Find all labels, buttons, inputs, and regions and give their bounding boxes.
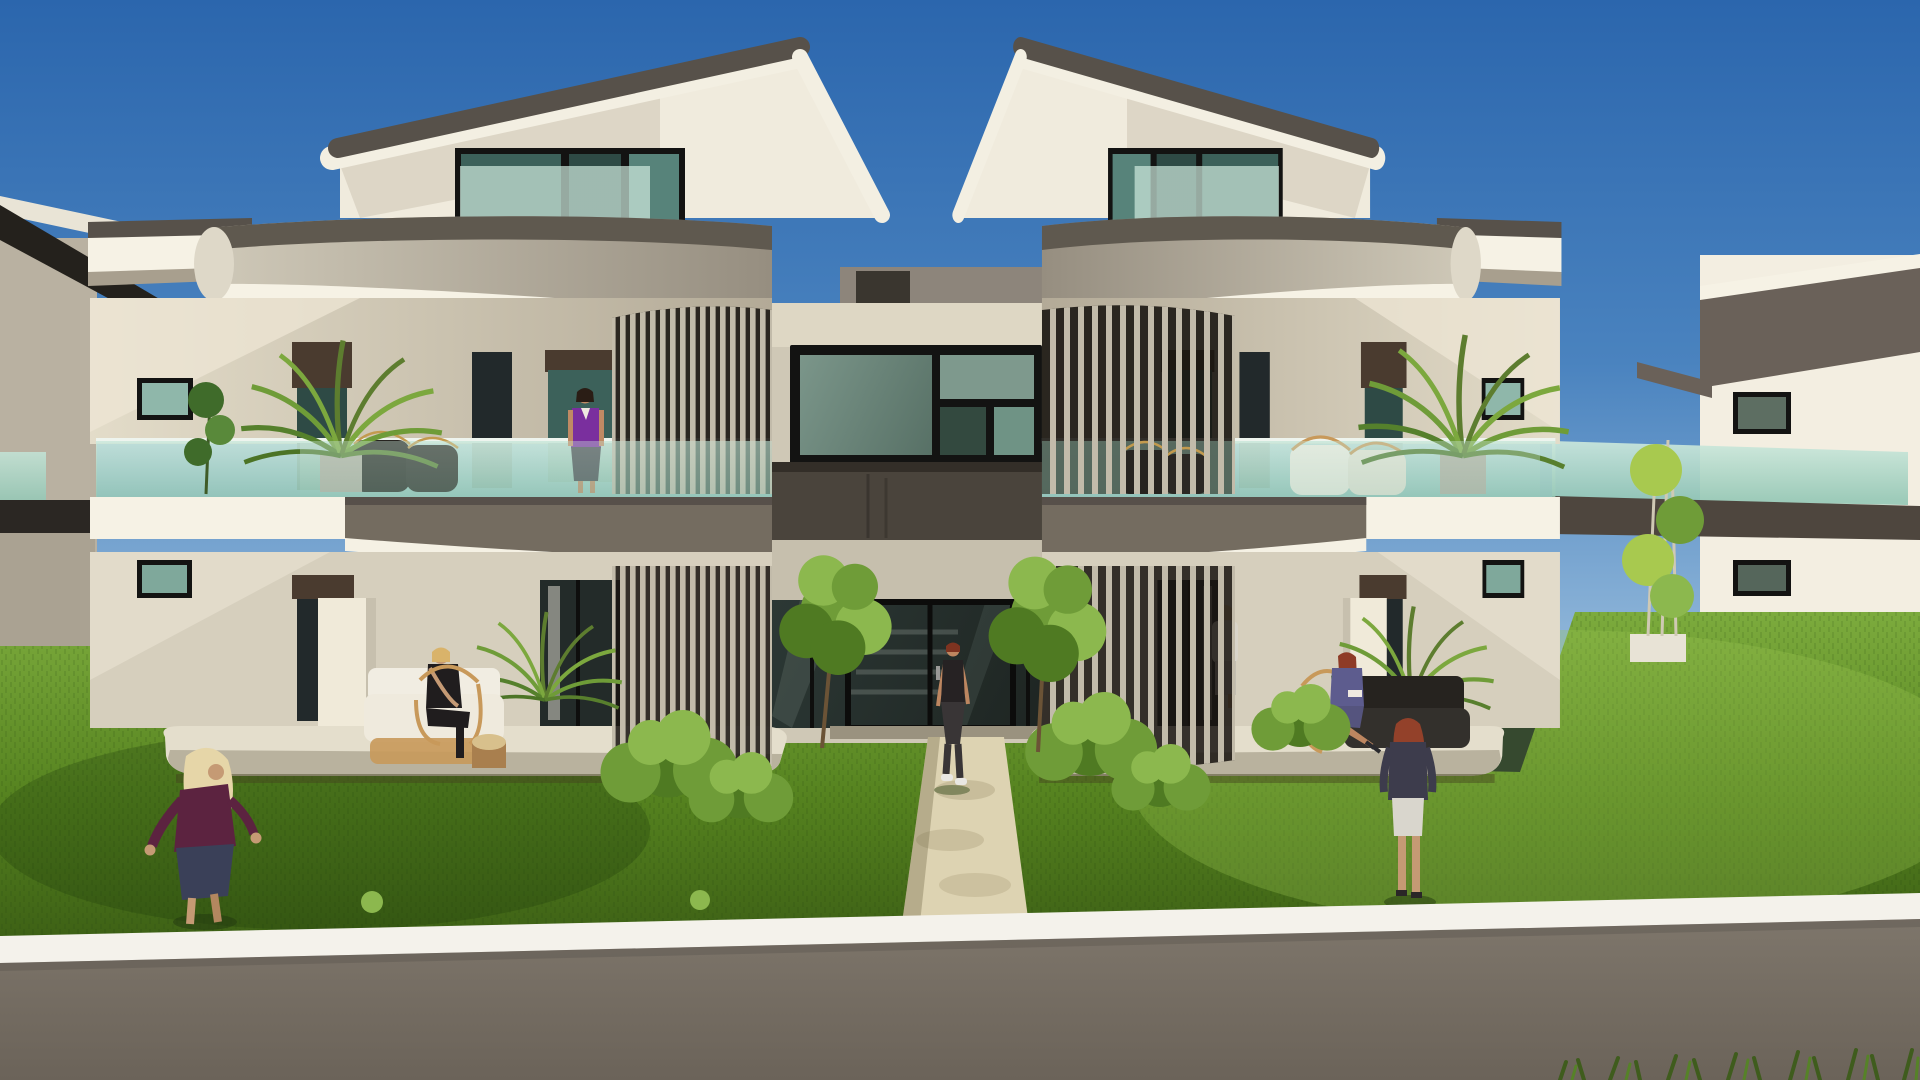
first-floor-window-wing — [137, 378, 193, 420]
path-dapple-3 — [939, 873, 1011, 897]
core-wall-strip — [772, 303, 1042, 347]
top — [174, 784, 236, 852]
glazing-pane-large — [800, 355, 932, 455]
leg-left — [946, 744, 948, 774]
band-rounded-end — [194, 227, 234, 301]
arm-left — [568, 410, 573, 446]
leg-left — [190, 898, 192, 924]
skirt — [1392, 798, 1424, 836]
log-stump-table — [472, 734, 506, 768]
shoe-left — [941, 774, 953, 781]
glass-overlay-right — [1240, 441, 1540, 497]
shoe-left — [1396, 890, 1407, 896]
glazing-pane-bottom-left — [940, 407, 986, 455]
small-bush-2 — [690, 890, 710, 910]
lower-leg — [456, 726, 464, 758]
architectural-rendering — [0, 0, 1920, 1080]
fascia-cap — [345, 497, 772, 505]
small-bush-1 — [361, 891, 383, 913]
skirt — [176, 844, 234, 900]
glass-overlay-left — [300, 441, 772, 497]
right-neighbor-window-lower — [1733, 560, 1791, 596]
shadow — [934, 785, 970, 795]
right-screen-upper-slats — [1042, 305, 1235, 494]
jacket — [1388, 742, 1428, 800]
arm-right — [599, 410, 604, 446]
core-upper-glazing — [790, 345, 1042, 465]
door-handle — [936, 666, 940, 680]
book — [1348, 690, 1362, 697]
leg-right — [1412, 836, 1420, 892]
leg-left — [1398, 836, 1406, 890]
leg-right — [958, 744, 960, 778]
tank-top — [941, 660, 965, 702]
face — [208, 764, 224, 780]
glazing-pane-top-right — [940, 355, 1034, 399]
left-neighbor-lower-wall — [0, 533, 95, 650]
shoe-right — [955, 778, 967, 785]
shadow — [173, 914, 237, 930]
ground-window-wing — [137, 560, 192, 598]
leg-right — [214, 894, 218, 922]
center-core — [772, 267, 1048, 743]
right-neighbor-window-upper — [1733, 392, 1791, 434]
left-neighbor-glass-rail — [0, 452, 46, 500]
planter — [1630, 634, 1686, 662]
rendering-stage — [0, 0, 1920, 1080]
door-mullion — [576, 580, 580, 726]
glazing-pane-bottom-right — [994, 407, 1034, 455]
core-roof-shadow — [856, 271, 910, 305]
hand-left — [145, 845, 156, 856]
blazer — [1330, 668, 1364, 706]
left-neighbor-dark-band — [0, 500, 95, 533]
shoe-right — [1411, 892, 1422, 898]
core-bridge-band — [772, 462, 1042, 540]
hand-right — [251, 833, 262, 844]
right-neighbor-glass-rail — [1552, 441, 1908, 505]
